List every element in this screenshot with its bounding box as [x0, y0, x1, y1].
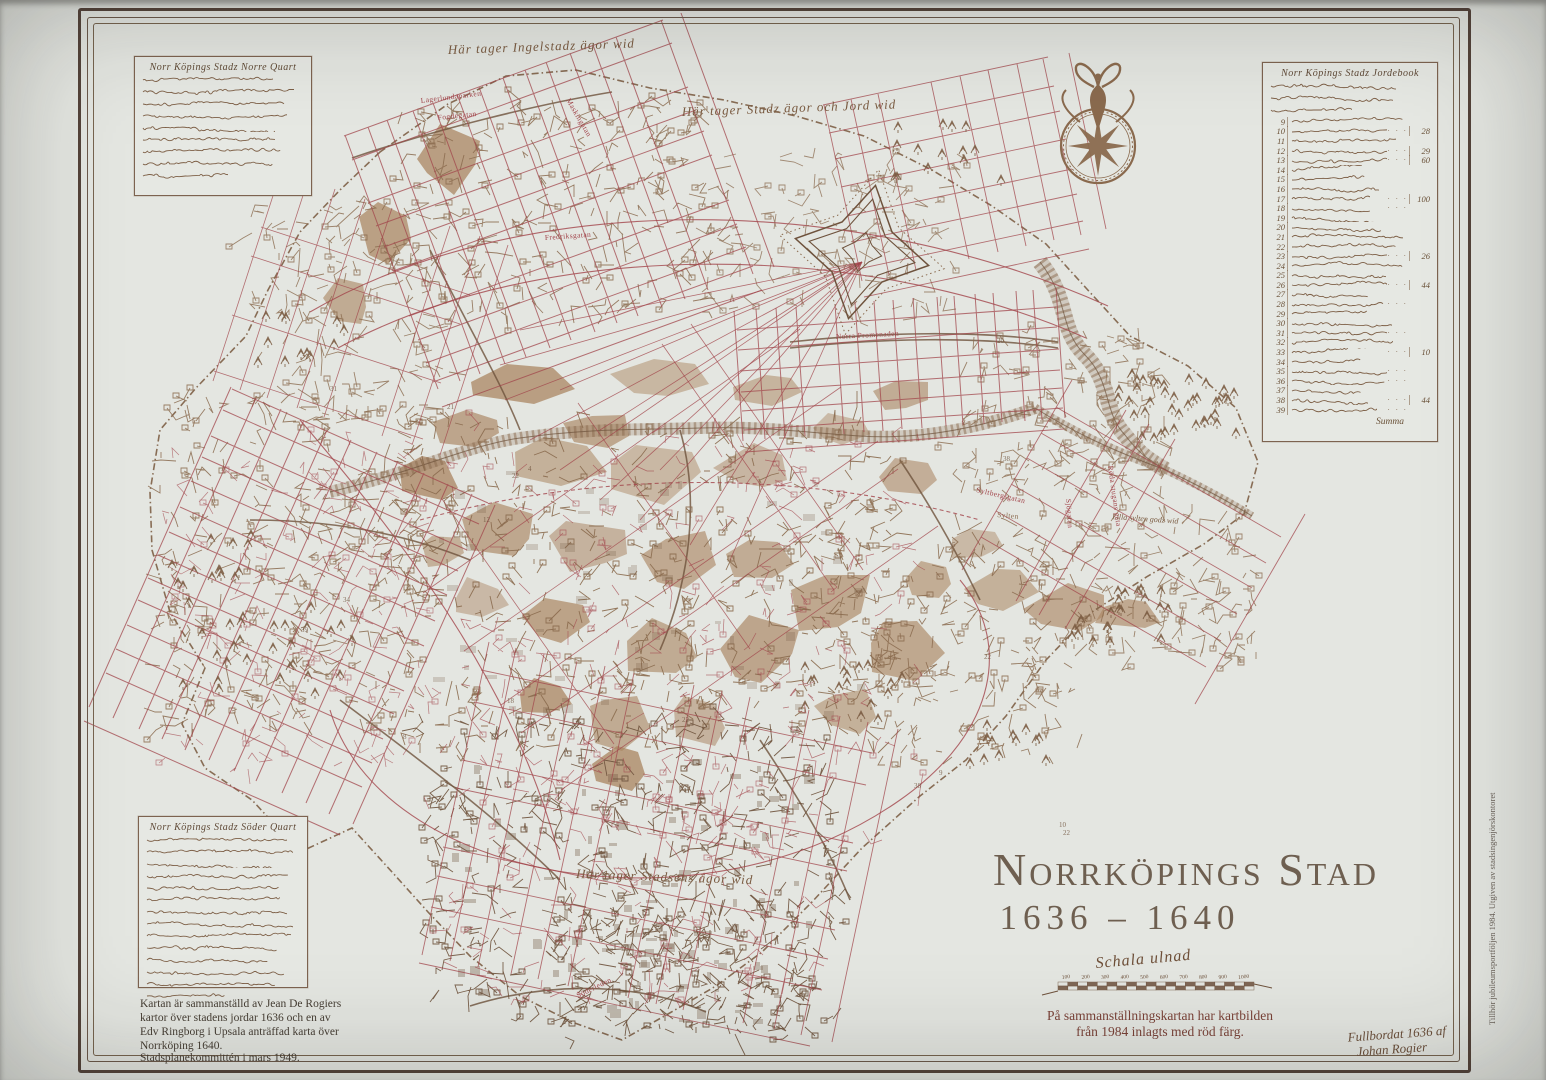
svg-text:600: 600 [1160, 974, 1169, 981]
land-register-title: Norr Köpings Stadz Jordebook [1270, 68, 1430, 79]
credits-line2: kartor över stadens jordar 1636 och en a… [140, 1011, 450, 1025]
svg-text:20: 20 [997, 337, 1005, 345]
cartouche-north-title: Norr Köpings Stadz Norre Quart [142, 62, 304, 73]
scale-caption: Schala ulnad [1095, 947, 1192, 972]
svg-text:9: 9 [939, 769, 943, 777]
svg-text:22: 22 [682, 716, 690, 724]
svg-text:300: 300 [1101, 974, 1110, 981]
land-register-rows: 910· · ·281112· · ·2913· · ·6014151617· … [1270, 117, 1430, 414]
svg-text:5: 5 [952, 541, 956, 549]
credits-line3: Edv Ringborg i Upsala anträffad karta öv… [140, 1025, 450, 1039]
svg-text:22: 22 [1063, 829, 1071, 837]
svg-text:800: 800 [1199, 974, 1208, 981]
svg-text:22: 22 [512, 472, 520, 480]
cartouche-south-title: Norr Köpings Stadz Söder Quart [146, 822, 300, 833]
svg-text:38: 38 [914, 782, 922, 790]
svg-text:8: 8 [403, 733, 407, 741]
svg-text:39: 39 [301, 626, 309, 634]
svg-text:18: 18 [507, 697, 515, 705]
svg-text:22: 22 [984, 653, 992, 661]
credits-text: Kartan är sammanställd av Jean De Rogier… [140, 997, 450, 1053]
committee-line: Stadsplanekommittén i mars 1949. [140, 1052, 300, 1064]
land-register-header-handwriting [1270, 79, 1430, 115]
map-poster-photo: 1002003004005006007008009001000348225439… [0, 0, 1546, 1080]
svg-text:200: 200 [1081, 974, 1090, 981]
svg-text:12: 12 [483, 516, 491, 524]
svg-text:31: 31 [330, 385, 338, 393]
credits-line1: Kartan är sammanställd av Jean De Rogier… [140, 997, 450, 1011]
street-label-fogdegatan: Fogdegatan [437, 109, 477, 122]
street-label-fredriksgatan: Fredriksgatan [545, 230, 592, 242]
map-title-years: 1636 – 1640 [930, 898, 1310, 938]
street-label-sjogatan: Sjögatan [1064, 499, 1075, 529]
cartouche-north-text-block: Norr Köpings Stadz Norre Quart [134, 56, 312, 196]
svg-text:21: 21 [447, 403, 455, 411]
credits-line4: Norrköping 1640. [140, 1039, 450, 1053]
svg-text:100: 100 [1062, 974, 1071, 981]
cartouche-north-handwriting [142, 73, 304, 181]
svg-text:1000: 1000 [1238, 974, 1250, 981]
red-overlay-note-line2: från 1984 inlagts med röd färg. [1076, 1024, 1244, 1039]
area-label-sylten: Sylten [997, 510, 1019, 521]
svg-text:900: 900 [1218, 974, 1227, 981]
land-register-list: Norr Köpings Stadz Jordebook 910· · ·281… [1262, 62, 1438, 442]
street-label-maskingatan: Maskingatan [564, 97, 593, 139]
svg-text:34: 34 [343, 596, 351, 604]
land-register-summa: Summa [1270, 417, 1430, 427]
edition-side-note: Tillhör jubileumsportföljen 1984. Utgive… [1487, 850, 1497, 1025]
svg-text:500: 500 [1140, 974, 1149, 981]
map-title: Norrköpings Stad [890, 843, 1482, 896]
svg-text:400: 400 [1120, 974, 1129, 981]
svg-text:4: 4 [528, 465, 532, 473]
red-overlay-note-line1: På sammanställningskartan har kartbilden [1047, 1008, 1273, 1023]
red-overlay-note: På sammanställningskartan har kartbilden… [980, 1008, 1340, 1040]
svg-text:700: 700 [1179, 974, 1188, 981]
handwritten-annotation-north-1: Här tager Ingelstadz ägor wid [447, 35, 636, 57]
svg-text:10: 10 [1059, 821, 1067, 829]
cartouche-south-text-block: Norr Köpings Stadz Söder Quart [138, 816, 308, 988]
svg-text:38: 38 [1003, 455, 1011, 463]
cartouche-south-handwriting [146, 833, 300, 1001]
